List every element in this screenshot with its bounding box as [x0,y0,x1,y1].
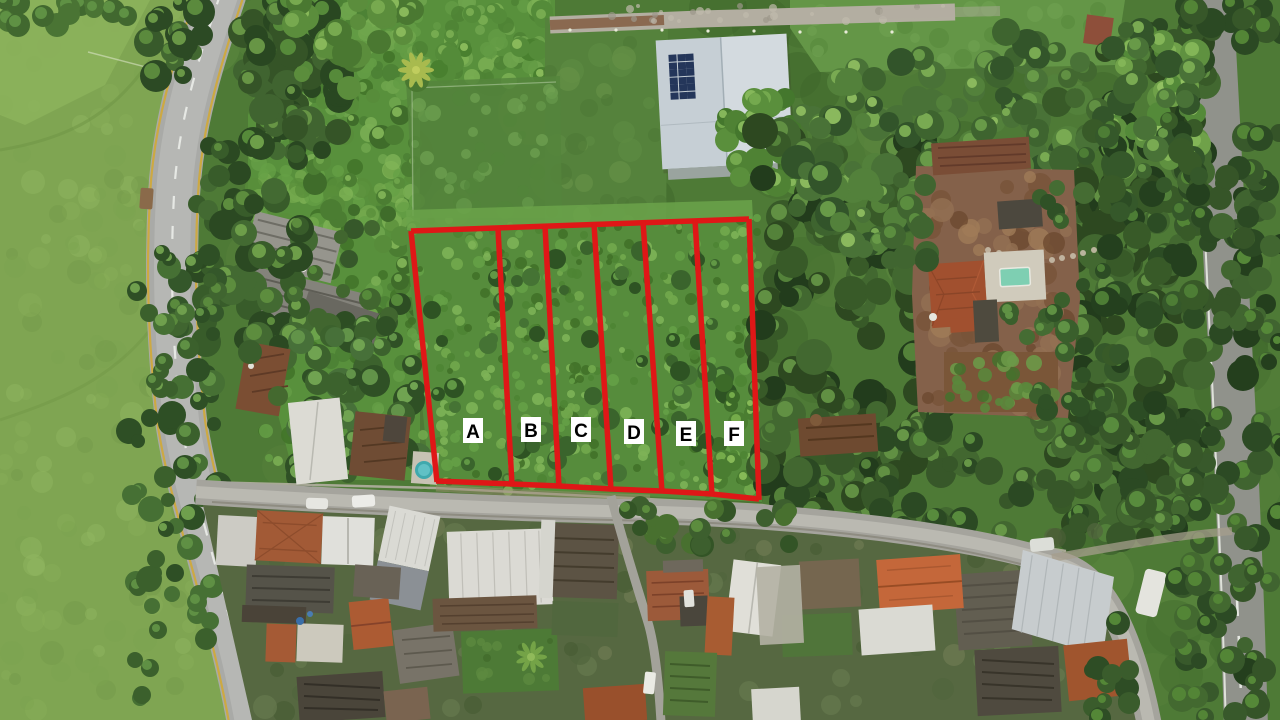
svg-text:B: B [524,421,538,442]
svg-text:A: A [466,422,480,443]
svg-text:F: F [728,425,740,446]
svg-text:E: E [680,425,693,446]
svg-text:C: C [574,421,588,442]
svg-text:D: D [627,423,641,444]
